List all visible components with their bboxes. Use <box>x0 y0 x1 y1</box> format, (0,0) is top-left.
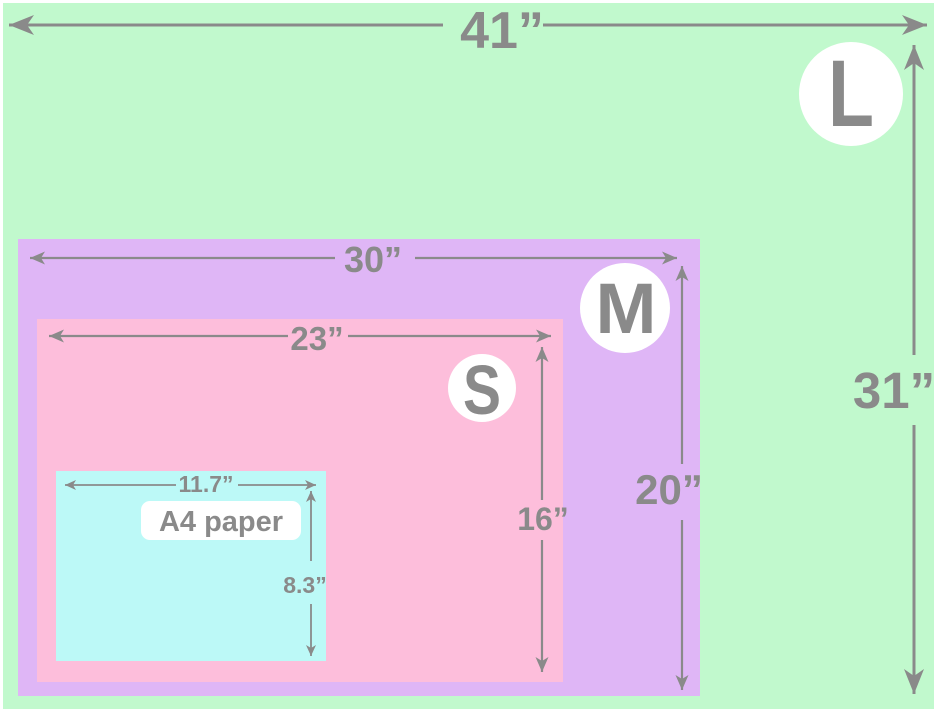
svg-text:20”: 20” <box>635 466 703 513</box>
svg-text:A4 paper: A4 paper <box>159 506 283 538</box>
svg-text:8.3”: 8.3” <box>283 572 326 598</box>
svg-text:S: S <box>463 351 501 429</box>
svg-text:41”: 41” <box>460 2 544 60</box>
svg-text:11.7”: 11.7” <box>179 471 234 497</box>
svg-text:L: L <box>828 41 874 147</box>
svg-text:31”: 31” <box>853 362 935 419</box>
svg-text:23”: 23” <box>290 320 343 357</box>
svg-text:30”: 30” <box>344 239 402 280</box>
svg-text:M: M <box>596 270 657 349</box>
svg-text:16”: 16” <box>517 501 569 537</box>
